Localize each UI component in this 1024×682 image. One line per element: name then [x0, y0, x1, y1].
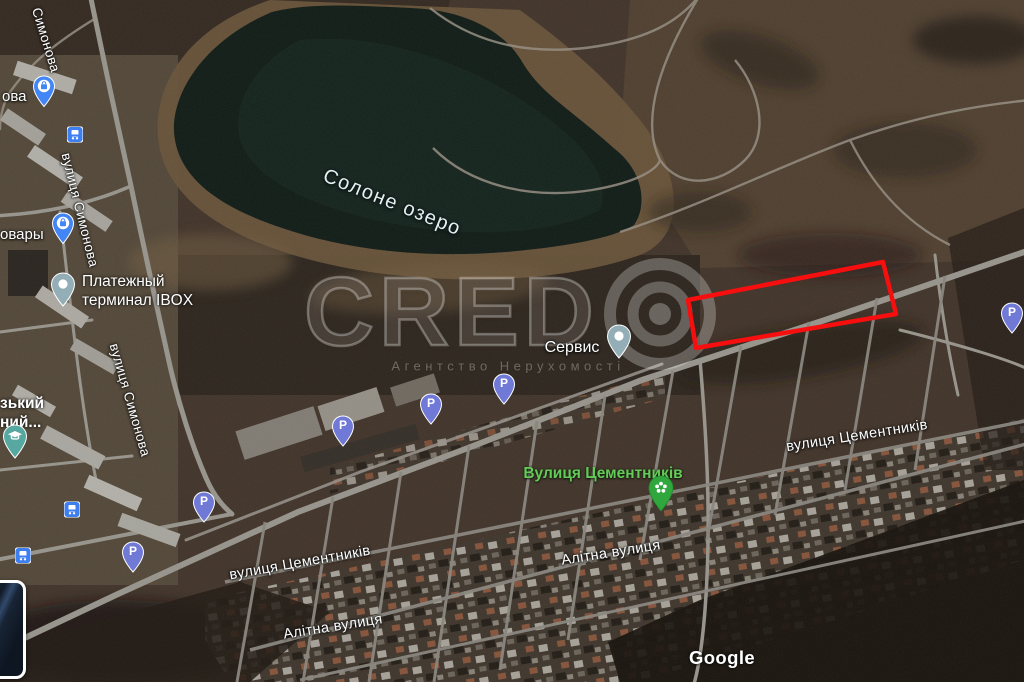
parking-pin[interactable]: P	[121, 541, 145, 578]
dot-pin-icon	[606, 324, 632, 359]
parking-letter: P	[492, 376, 516, 390]
service-pin[interactable]	[606, 324, 632, 364]
bus-stop-icon[interactable]	[15, 548, 31, 569]
bus-stop-icon[interactable]	[67, 127, 83, 148]
poi-label-clipped-ovary[interactable]: овары	[0, 226, 44, 243]
payment-terminal-pin[interactable]	[50, 272, 76, 312]
parking-pin[interactable]: P	[419, 393, 443, 430]
flower-icon	[648, 475, 675, 512]
google-logo: Google	[689, 647, 755, 669]
bus-stop-icon[interactable]	[64, 502, 80, 523]
parking-pin[interactable]: P	[331, 415, 355, 452]
parking-pin[interactable]: P	[192, 491, 216, 528]
poi-label-payment-terminal[interactable]: Платежный терминал IBOX	[82, 272, 193, 310]
shopping-pin[interactable]	[51, 212, 75, 250]
property-outline-overlay	[0, 0, 1024, 682]
parking-letter: P	[1000, 305, 1024, 319]
shopping-bag-icon	[51, 212, 75, 245]
poi-label-payment-line2: терминал IBOX	[82, 291, 193, 310]
poi-label-payment-line1: Платежный	[82, 272, 193, 291]
parking-letter: P	[331, 418, 355, 432]
parking-letter: P	[192, 494, 216, 508]
parking-pin[interactable]: P	[1000, 302, 1024, 339]
parking-letter: P	[419, 396, 443, 410]
street-view-preview[interactable]	[0, 580, 26, 679]
shopping-bag-icon	[32, 75, 56, 108]
university-pin[interactable]	[2, 424, 28, 464]
poi-label-university-line1: зький	[0, 394, 44, 413]
map-canvas[interactable]: CRED Агентство Нерухомості Солоне озеро …	[0, 0, 1024, 682]
selected-parcel-outline	[688, 262, 896, 348]
poi-label-service[interactable]: Сервис	[545, 339, 600, 357]
graduation-cap-icon	[2, 424, 28, 459]
parking-letter: P	[121, 544, 145, 558]
poi-label-clipped-ova[interactable]: ова	[2, 88, 27, 105]
parking-pin[interactable]: P	[492, 373, 516, 410]
dot-pin-icon	[50, 272, 76, 307]
park-pin[interactable]	[648, 475, 675, 517]
shopping-pin[interactable]	[32, 75, 56, 113]
